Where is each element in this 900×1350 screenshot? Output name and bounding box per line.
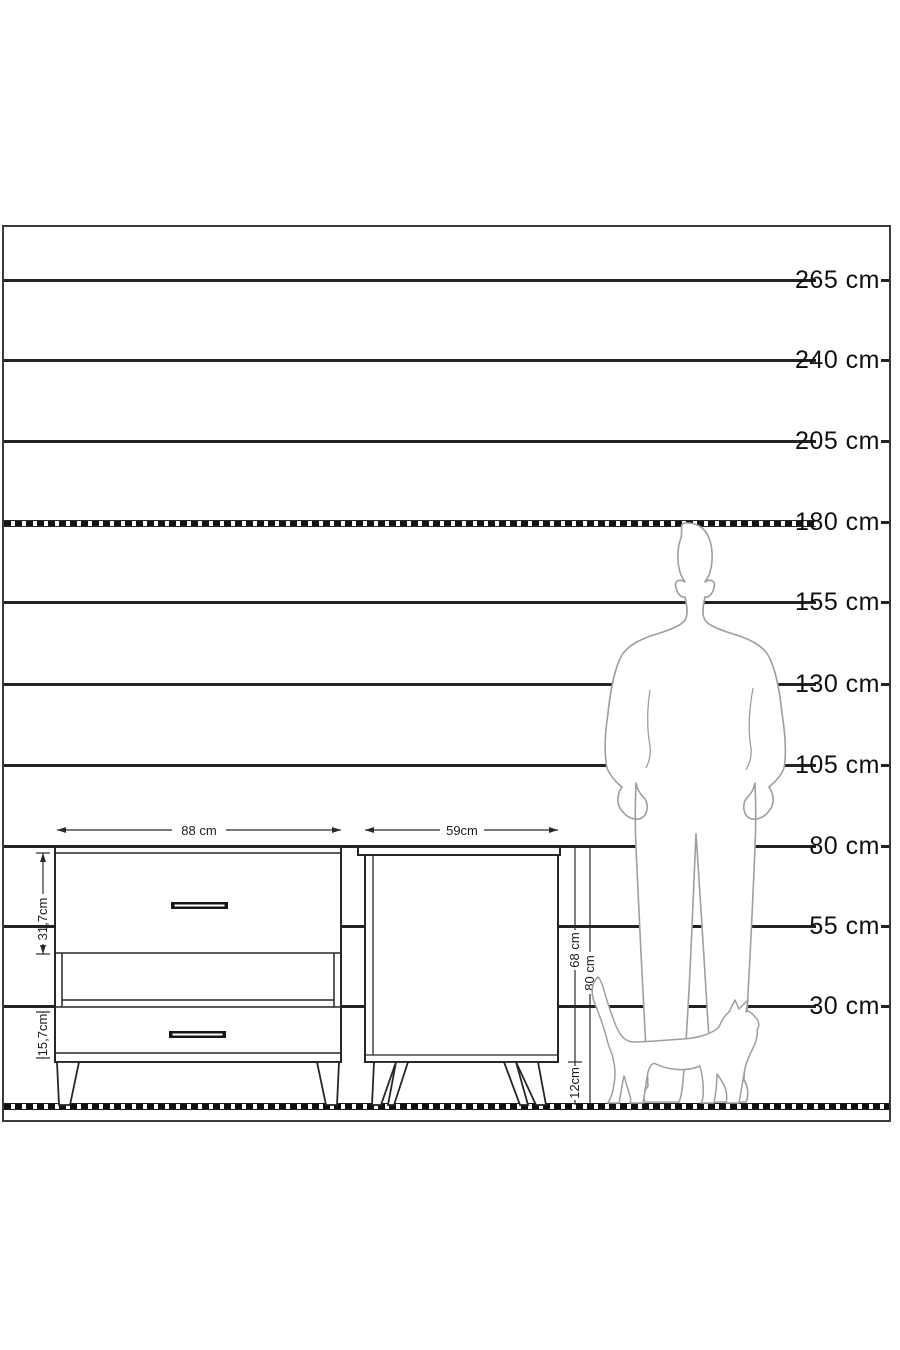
scale-label: 105 cm: [795, 751, 880, 780]
scale-rule: [4, 279, 816, 282]
nightstand-body: [358, 847, 560, 1062]
drawer-handle: [169, 1031, 226, 1038]
nightstand-side-view: 59cm 68 cm 12cm 80 cm: [350, 818, 610, 1110]
scale-line-240: 240 cm: [4, 347, 889, 375]
arrowhead-down: [40, 945, 46, 954]
scale-tick: [881, 1005, 889, 1008]
scale-rule: [4, 440, 816, 443]
scale-rule: [4, 359, 816, 362]
nightstand-legs: [372, 1062, 546, 1105]
cat-silhouette: [588, 972, 768, 1108]
scale-label: 180 cm: [795, 508, 880, 537]
scale-tick: [881, 764, 889, 767]
scale-tick: [881, 925, 889, 928]
scale-line-265: 265 cm: [4, 267, 889, 295]
scale-label: 155 cm: [795, 588, 880, 617]
leg-height-label: 12cm: [567, 1067, 582, 1099]
dresser-front-view: 88 cm: [0, 818, 356, 1110]
scale-label: 265 cm: [795, 266, 880, 295]
scale-tick: [881, 521, 889, 524]
dresser-legs: [57, 1062, 339, 1105]
scale-line-205: 205 cm: [4, 428, 889, 456]
scale-tick: [881, 359, 889, 362]
scale-tick: [881, 279, 889, 282]
dresser-width-label: 88 cm: [181, 823, 216, 838]
arrowhead-right: [549, 827, 558, 833]
scale-tick: [881, 683, 889, 686]
scale-label: 55 cm: [809, 912, 880, 941]
arrowhead-right: [332, 827, 341, 833]
furniture-dimension-diagram: 265 cm 240 cm 205 cm 180 cm 155 cm 130 c…: [0, 0, 900, 1350]
scale-tick: [881, 440, 889, 443]
nightstand-width-label: 59cm: [446, 823, 478, 838]
dresser-body: [55, 847, 341, 1062]
drawer-handle: [171, 902, 228, 909]
body-height-label: 68 cm: [567, 932, 582, 967]
scale-label: 30 cm: [809, 992, 880, 1021]
arrowhead-up: [40, 853, 46, 862]
top-drawer-height-label: 31,7cm: [35, 898, 50, 941]
scale-label: 130 cm: [795, 670, 880, 699]
scale-label: 240 cm: [795, 346, 880, 375]
arrowhead-left: [57, 827, 66, 833]
arrowhead-left: [365, 827, 374, 833]
bottom-drawer-height-label: 15,7cm: [35, 1014, 50, 1057]
scale-label: 205 cm: [795, 427, 880, 456]
scale-tick: [881, 845, 889, 848]
scale-tick: [881, 601, 889, 604]
scale-label: 80 cm: [809, 832, 880, 861]
